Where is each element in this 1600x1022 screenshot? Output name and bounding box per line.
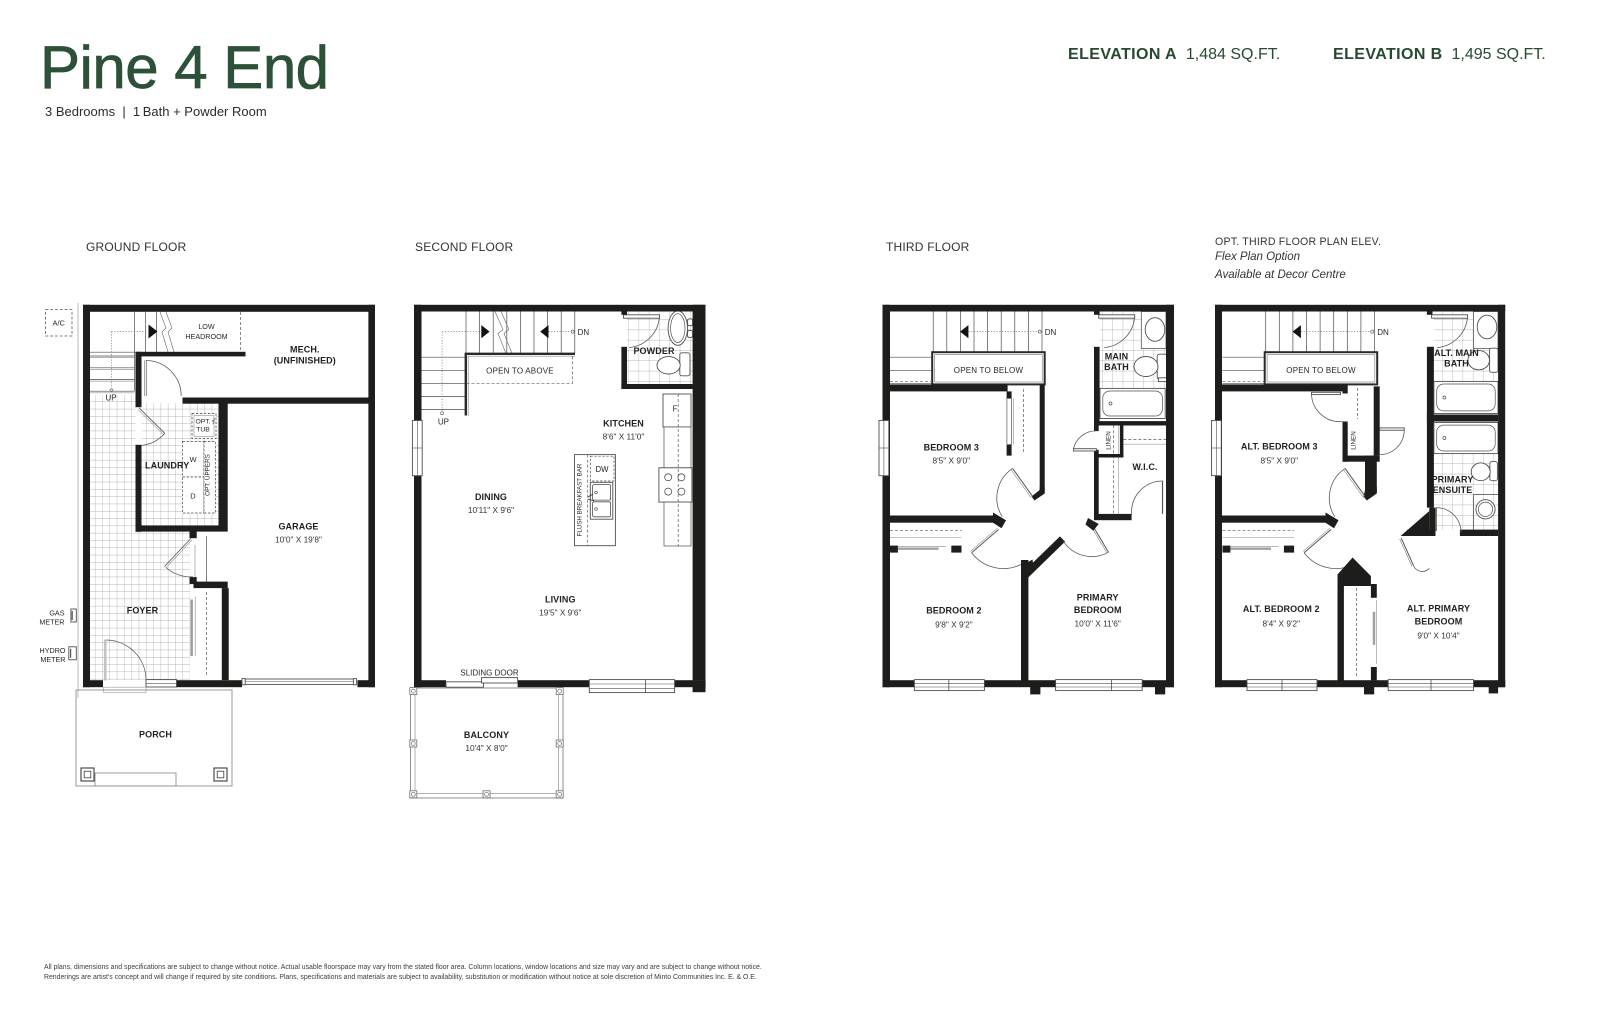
svg-text:DN: DN [1045,328,1057,337]
svg-text:DN: DN [578,328,590,337]
svg-text:F: F [673,405,678,414]
svg-text:PRIMARY: PRIMARY [1077,593,1119,603]
svg-text:A/C: A/C [52,319,65,328]
svg-text:10'11" X 9'6": 10'11" X 9'6" [468,505,514,515]
svg-text:8'5" X 9'0": 8'5" X 9'0" [932,456,970,466]
svg-text:LOW: LOW [198,322,215,331]
svg-text:BEDROOM: BEDROOM [1415,617,1463,627]
svg-text:HEADROOM: HEADROOM [185,332,227,341]
svg-text:FLUSH BREAKFAST BAR: FLUSH BREAKFAST BAR [577,463,584,536]
svg-text:BATH: BATH [1104,362,1129,372]
svg-text:KITCHEN: KITCHEN [603,419,644,429]
svg-text:LINEN: LINEN [1106,431,1113,450]
svg-text:D: D [190,492,196,501]
svg-text:OPEN TO BELOW: OPEN TO BELOW [1286,366,1356,375]
svg-text:GAS: GAS [49,609,64,618]
svg-text:(UNFINISHED): (UNFINISHED) [274,356,336,366]
svg-text:MECH.: MECH. [290,345,320,355]
svg-text:W.I.C.: W.I.C. [1132,462,1157,472]
svg-text:GARAGE: GARAGE [278,522,318,532]
svg-text:OPT.: OPT. [195,419,210,426]
svg-text:ALT. MAIN: ALT. MAIN [1434,348,1479,358]
svg-text:BEDROOM: BEDROOM [1074,605,1122,615]
svg-text:9'8" X 9'2": 9'8" X 9'2" [935,620,973,630]
svg-text:OPEN TO ABOVE: OPEN TO ABOVE [486,367,554,376]
svg-text:OPT. UPPERS: OPT. UPPERS [205,454,212,496]
svg-text:METER: METER [39,618,64,627]
svg-text:BALCONY: BALCONY [464,730,509,740]
svg-text:10'0" X 19'8": 10'0" X 19'8" [275,535,322,545]
svg-text:PRIMARY: PRIMARY [1432,475,1474,485]
svg-text:MAIN: MAIN [1105,352,1128,362]
svg-text:9'0" X 10'4": 9'0" X 10'4" [1417,631,1459,641]
svg-text:FOYER: FOYER [127,606,159,616]
svg-text:LIVING: LIVING [545,595,576,605]
svg-text:19'5" X 9'6": 19'5" X 9'6" [539,608,581,618]
svg-text:DW: DW [596,465,610,474]
svg-text:SLIDING DOOR: SLIDING DOOR [460,668,518,677]
svg-text:TUB: TUB [196,427,210,434]
svg-text:HYDRO: HYDRO [40,646,66,655]
svg-text:BEDROOM 3: BEDROOM 3 [924,443,979,453]
svg-text:DN: DN [1377,328,1389,337]
svg-text:10'0" X 11'6": 10'0" X 11'6" [1075,619,1121,629]
svg-text:UP: UP [106,394,117,403]
svg-text:LAUNDRY: LAUNDRY [145,461,189,471]
svg-text:DINING: DINING [475,492,507,502]
svg-text:POWDER: POWDER [633,346,675,356]
svg-text:ALT. BEDROOM 2: ALT. BEDROOM 2 [1243,604,1320,614]
svg-text:ALT. PRIMARY: ALT. PRIMARY [1407,604,1470,614]
svg-text:OPEN TO BELOW: OPEN TO BELOW [954,366,1024,375]
svg-text:8'5" X 9'0": 8'5" X 9'0" [1260,456,1298,466]
svg-text:W: W [189,455,197,464]
svg-text:ENSUITE: ENSUITE [1433,485,1473,495]
svg-text:LINEN: LINEN [1350,431,1357,450]
svg-text:METER: METER [40,655,65,664]
svg-text:BEDROOM 2: BEDROOM 2 [926,606,981,616]
svg-text:UP: UP [438,418,449,427]
svg-text:8'6" X 11'0": 8'6" X 11'0" [603,432,645,442]
svg-text:PORCH: PORCH [139,730,172,740]
svg-text:ALT. BEDROOM 3: ALT. BEDROOM 3 [1241,442,1318,452]
svg-text:10'4" X 8'0": 10'4" X 8'0" [465,743,507,753]
svg-text:8'4" X 9'2": 8'4" X 9'2" [1262,619,1300,629]
svg-text:BATH: BATH [1444,359,1469,369]
